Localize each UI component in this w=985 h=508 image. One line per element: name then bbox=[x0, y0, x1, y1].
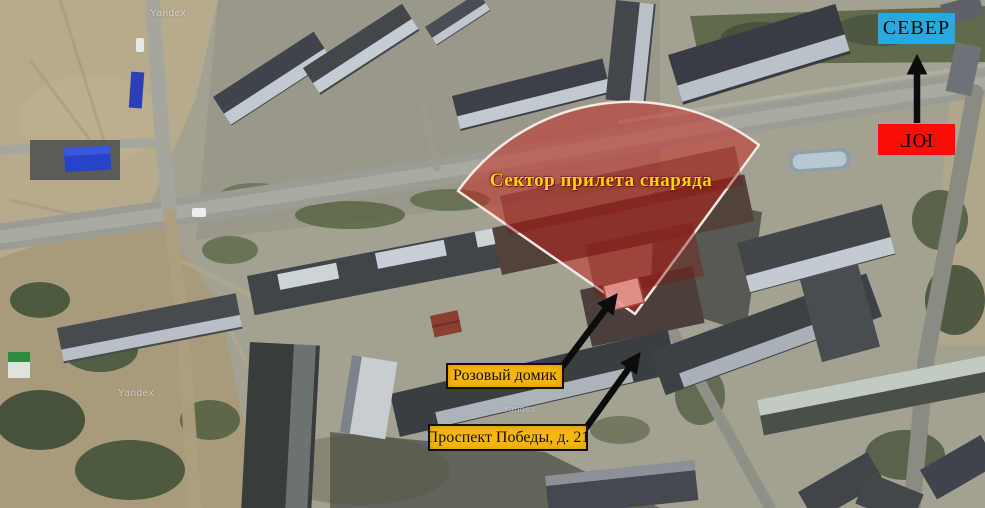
chapel bbox=[8, 352, 30, 378]
sector-caption: Сектор прилета снаряда bbox=[455, 170, 747, 192]
compass-south-text: ЮГ bbox=[899, 128, 933, 151]
compass-south-label: ЮГ bbox=[878, 124, 955, 155]
blue-roof-building bbox=[30, 140, 120, 180]
address-label: Проспект Победы, д. 21 bbox=[428, 424, 588, 451]
annotated-satellite-map: Yandex Yandex Yandex Сектор прилета снар… bbox=[0, 0, 985, 508]
compass-north-label: СЕВЕР bbox=[878, 13, 955, 44]
hockey-rink bbox=[788, 148, 851, 173]
pink-house-label: Розовый домик bbox=[446, 363, 564, 389]
